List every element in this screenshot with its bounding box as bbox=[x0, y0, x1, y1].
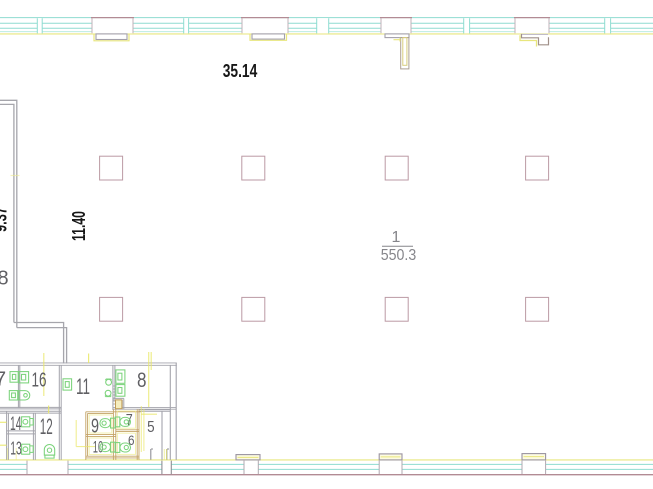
svg-text:1: 1 bbox=[392, 229, 401, 246]
svg-text:12: 12 bbox=[40, 414, 53, 439]
svg-text:5: 5 bbox=[147, 419, 155, 436]
svg-text:11: 11 bbox=[76, 374, 90, 399]
svg-text:16: 16 bbox=[32, 369, 47, 391]
svg-text:7: 7 bbox=[0, 369, 6, 391]
svg-text:13: 13 bbox=[10, 439, 22, 459]
svg-text:9.37: 9.37 bbox=[0, 207, 11, 232]
svg-text:550.3: 550.3 bbox=[381, 247, 417, 264]
svg-text:9: 9 bbox=[91, 416, 99, 438]
svg-text:35.14: 35.14 bbox=[223, 61, 258, 81]
svg-text:8: 8 bbox=[0, 268, 9, 290]
svg-text:8: 8 bbox=[137, 369, 147, 392]
svg-text:11.40: 11.40 bbox=[69, 211, 89, 241]
svg-text:6: 6 bbox=[128, 432, 135, 448]
svg-text:14: 14 bbox=[10, 414, 22, 435]
